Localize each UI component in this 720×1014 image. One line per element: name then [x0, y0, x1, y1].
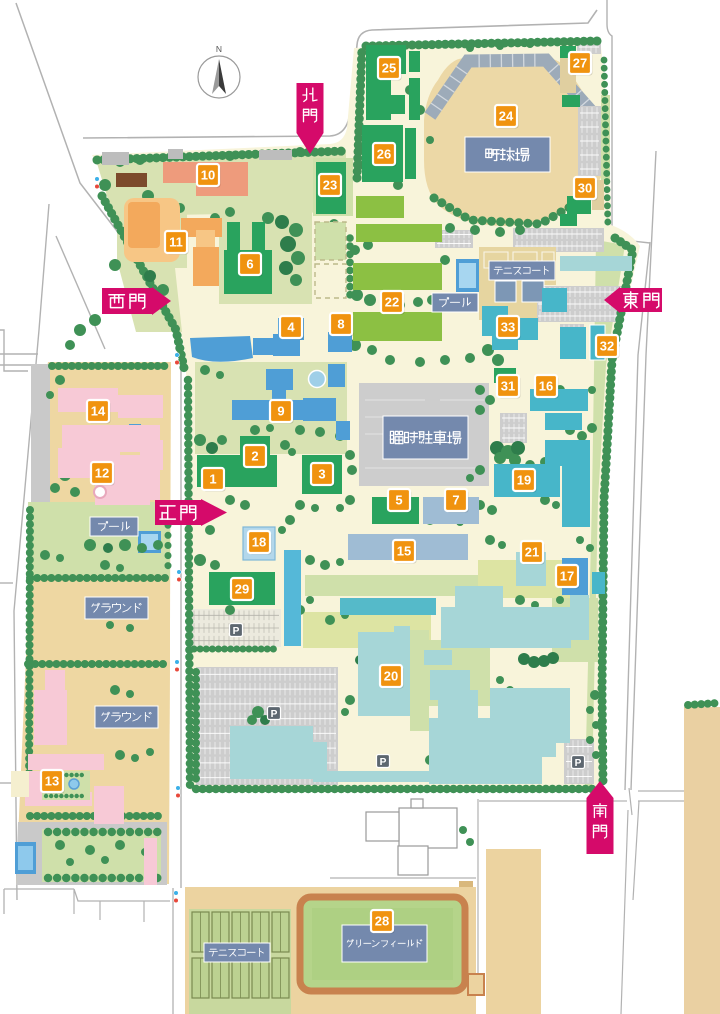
svg-text:24: 24	[499, 109, 514, 124]
svg-text:22: 22	[385, 295, 399, 310]
svg-text:P: P	[233, 626, 240, 637]
svg-text:21: 21	[525, 545, 539, 560]
svg-text:2: 2	[251, 449, 258, 464]
svg-text:14: 14	[91, 404, 106, 419]
svg-text:9: 9	[277, 404, 284, 419]
svg-text:N: N	[216, 44, 222, 54]
svg-text:26: 26	[377, 147, 391, 162]
svg-text:8: 8	[337, 317, 344, 332]
svg-text:31: 31	[501, 379, 515, 394]
svg-text:1: 1	[209, 472, 216, 487]
svg-text:13: 13	[45, 774, 59, 789]
svg-text:23: 23	[323, 178, 337, 193]
svg-text:20: 20	[384, 669, 398, 684]
svg-text:3: 3	[318, 467, 325, 482]
svg-text:10: 10	[201, 168, 215, 183]
svg-text:P: P	[575, 758, 582, 769]
svg-text:17: 17	[560, 569, 574, 584]
svg-text:P: P	[380, 757, 387, 768]
svg-text:6: 6	[246, 257, 253, 272]
svg-text:27: 27	[573, 56, 587, 71]
svg-text:33: 33	[501, 320, 515, 335]
svg-text:4: 4	[287, 320, 295, 335]
svg-text:28: 28	[375, 914, 389, 929]
svg-text:12: 12	[95, 466, 109, 481]
svg-text:29: 29	[235, 582, 249, 597]
svg-text:19: 19	[517, 473, 531, 488]
svg-text:5: 5	[395, 493, 402, 508]
svg-text:25: 25	[382, 61, 396, 76]
svg-text:7: 7	[452, 493, 459, 508]
svg-text:P: P	[271, 709, 278, 720]
svg-text:16: 16	[539, 379, 553, 394]
svg-text:18: 18	[252, 535, 266, 550]
svg-text:11: 11	[169, 235, 183, 250]
svg-text:32: 32	[600, 339, 614, 354]
svg-text:30: 30	[578, 181, 592, 196]
svg-text:15: 15	[397, 544, 411, 559]
